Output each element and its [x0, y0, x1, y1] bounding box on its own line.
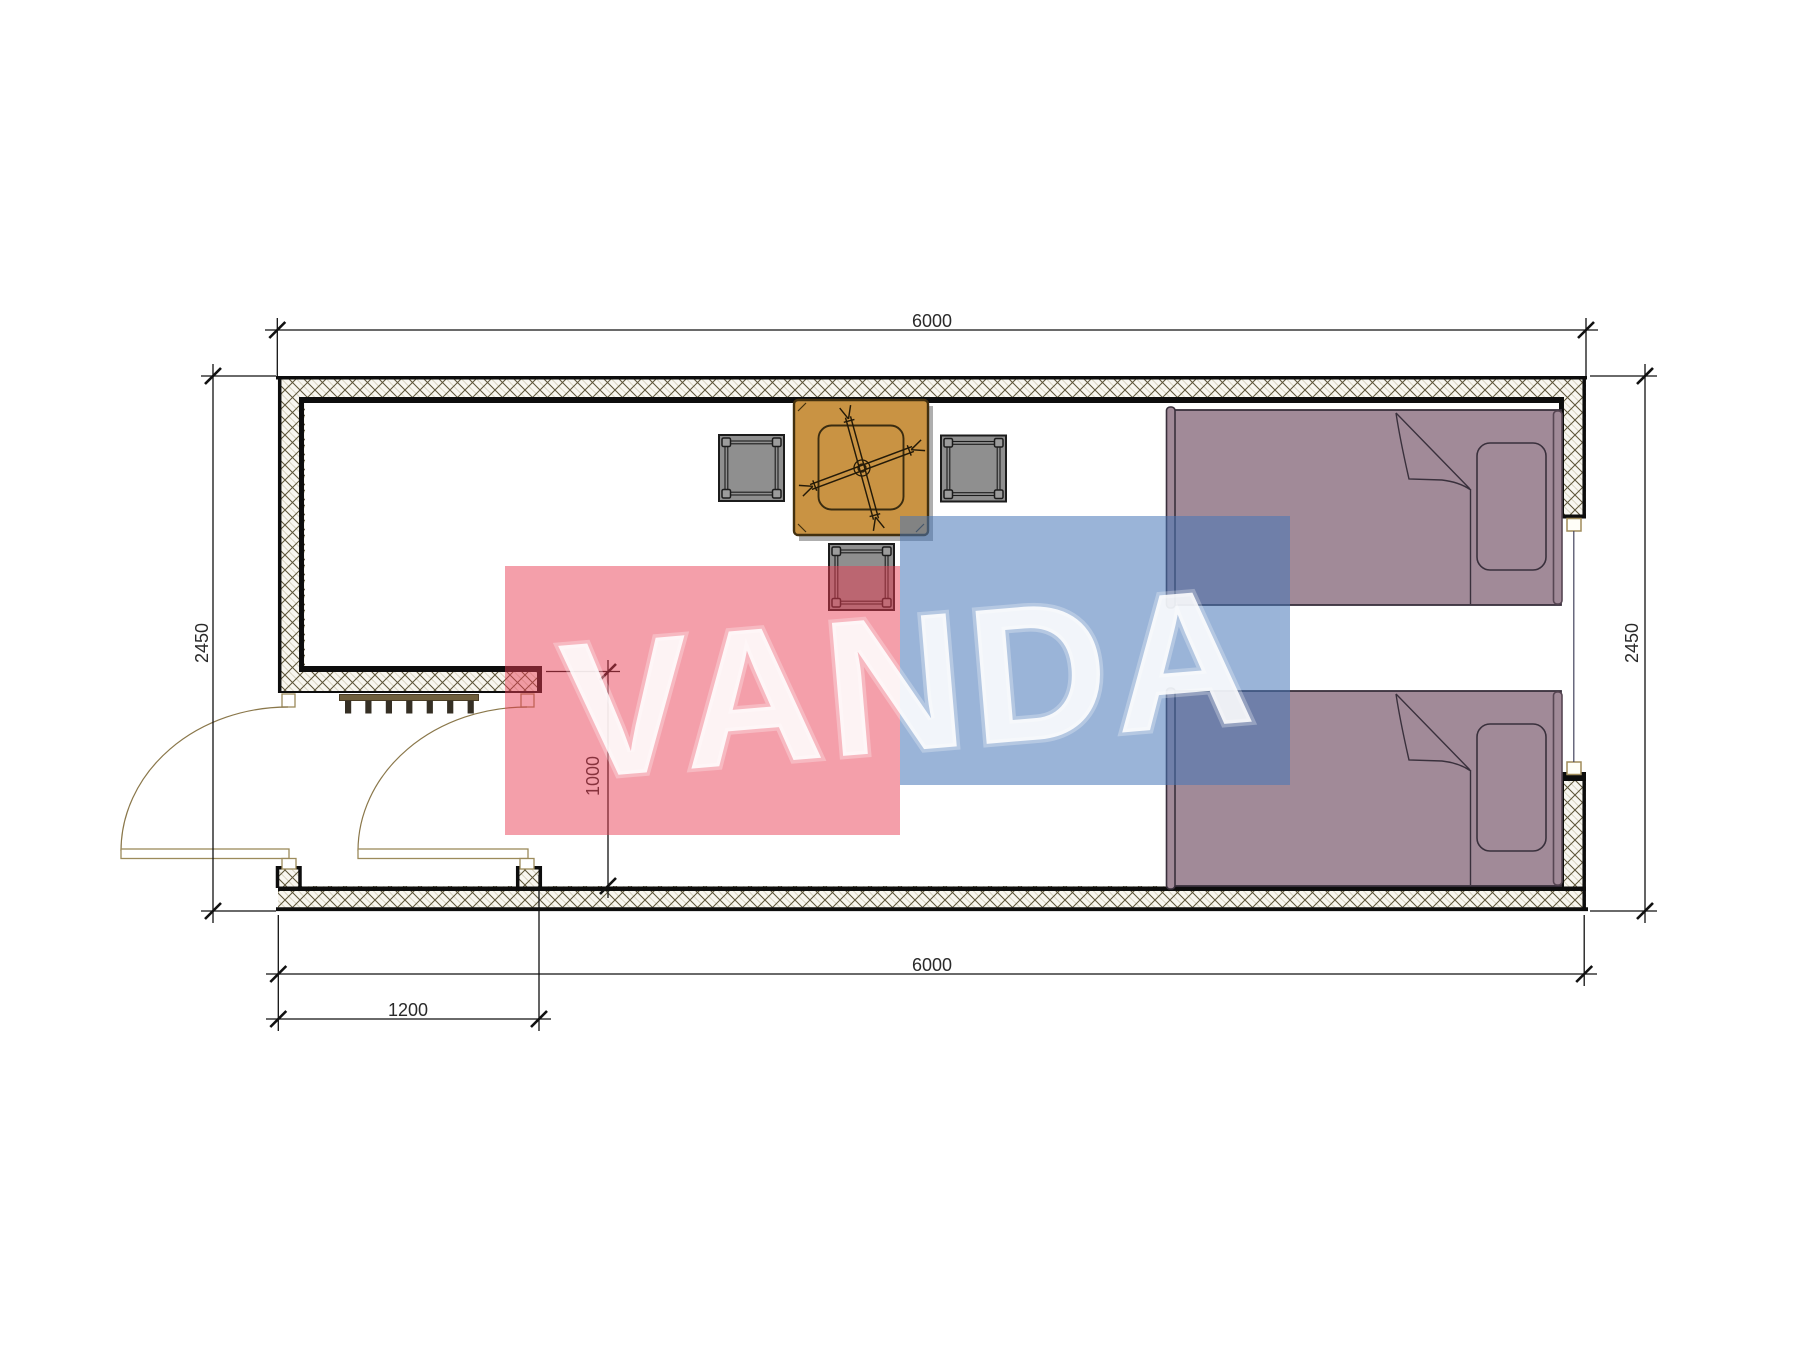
svg-text:2450: 2450 [192, 623, 212, 663]
svg-text:1200: 1200 [388, 1000, 428, 1020]
svg-text:2450: 2450 [1622, 623, 1642, 663]
svg-text:6000: 6000 [912, 311, 952, 331]
svg-text:6000: 6000 [912, 955, 952, 975]
